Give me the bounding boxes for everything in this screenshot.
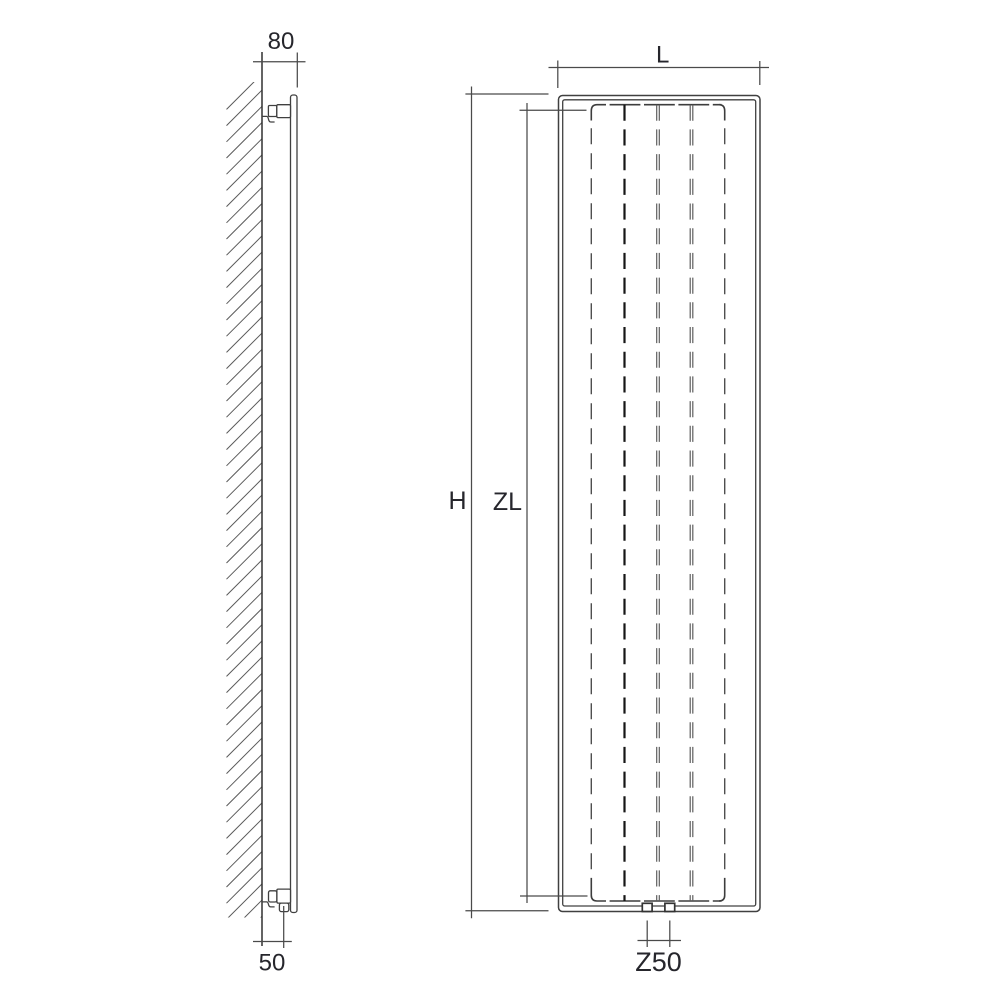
svg-text:ZL: ZL bbox=[493, 488, 522, 516]
svg-text:80: 80 bbox=[268, 28, 295, 55]
svg-text:Z50: Z50 bbox=[635, 947, 682, 977]
svg-text:H: H bbox=[448, 487, 466, 515]
svg-text:L: L bbox=[656, 42, 669, 69]
svg-text:50: 50 bbox=[259, 950, 286, 977]
